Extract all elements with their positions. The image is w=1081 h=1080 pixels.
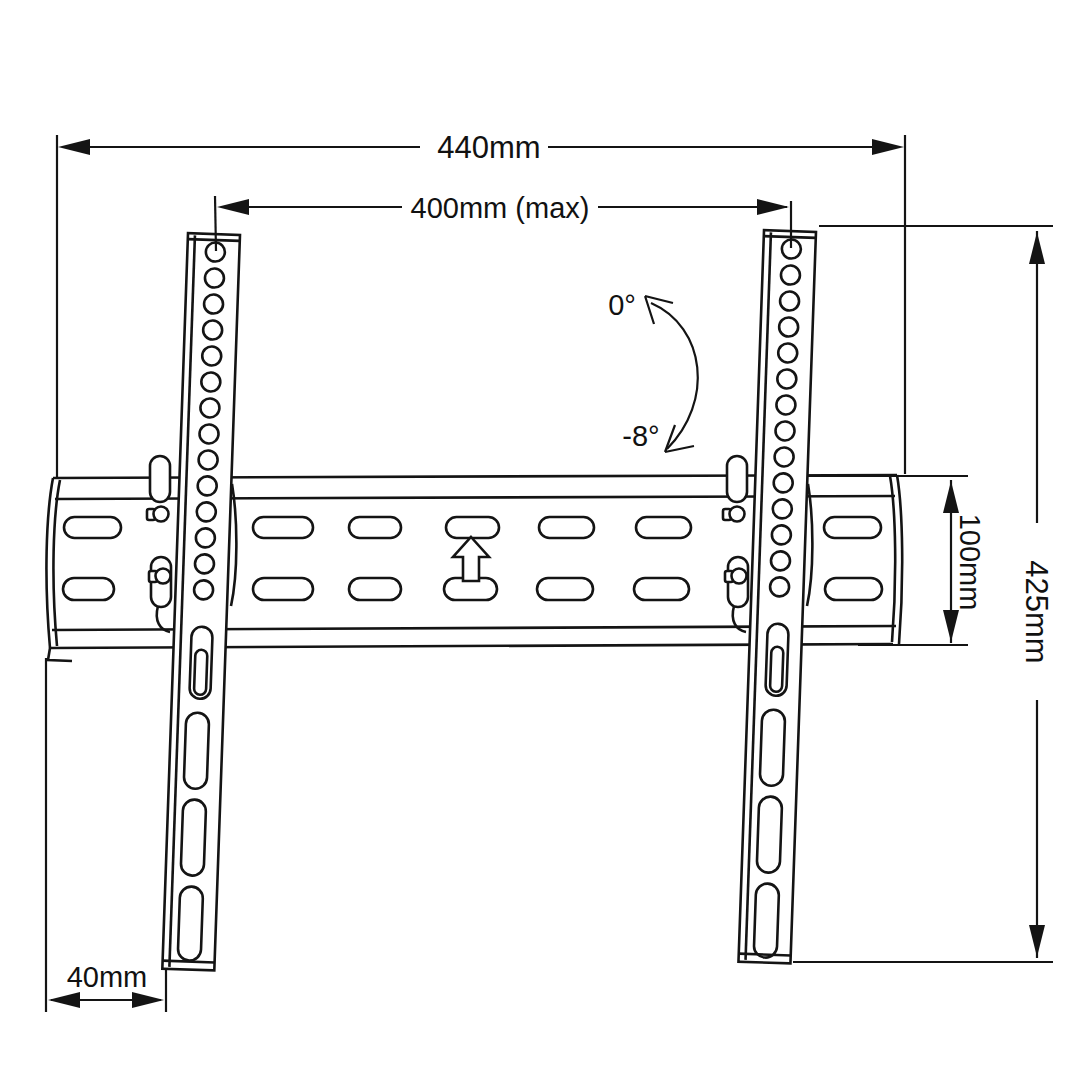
- right-bracket-bottom-cap: [739, 954, 791, 956]
- arrowhead-top: [943, 481, 959, 513]
- rail-left-fold-outer: [46, 478, 53, 648]
- arrowhead-left: [217, 199, 249, 215]
- max-hole-spacing-label: 400mm (max): [411, 192, 590, 224]
- rail-right-fold-inner: [890, 476, 895, 642]
- overall-width-label: 440mm: [437, 130, 540, 165]
- screw-head: [154, 507, 169, 522]
- tilt-lower-label: -8°: [622, 420, 659, 452]
- right-vesa-bracket: [738, 230, 816, 963]
- left-bracket-top-cap: [188, 239, 240, 241]
- right-bracket-hooks: [727, 456, 748, 632]
- arrowhead-left: [58, 139, 90, 155]
- arrowhead-right: [757, 199, 789, 215]
- right-upper-hook-ear: [727, 456, 747, 502]
- left-hook-curl: [157, 606, 170, 632]
- dimension-bracket-height: 425mm: [793, 226, 1054, 962]
- left-vesa-bracket: [162, 233, 240, 970]
- screw-head: [156, 569, 171, 584]
- dimension-edge-offset: 40mm: [46, 658, 166, 1012]
- wall-mount-diagram: 0° -8° 440mm 400mm (max) 425mm: [0, 0, 1081, 1080]
- screw-head: [730, 507, 745, 522]
- rail-right-fold-outer: [897, 475, 902, 644]
- bracket-height-label: 425mm: [1019, 560, 1054, 663]
- arrowhead-top: [1029, 232, 1045, 264]
- arrowhead-right: [132, 992, 164, 1008]
- arrowhead-left: [48, 992, 80, 1008]
- screw-head: [732, 569, 747, 584]
- right-bracket-top-cap: [764, 236, 816, 238]
- left-upper-hook-ear: [150, 456, 170, 502]
- rail-left-fold-inner: [53, 480, 60, 646]
- tilt-arc-arrowhead-top: [645, 296, 673, 324]
- arrowhead-bottom: [1029, 925, 1045, 957]
- tilt-upper-label: 0°: [608, 289, 636, 321]
- dimension-max-hole-spacing: 400mm (max): [215, 192, 791, 251]
- tilt-angle-indicator: 0° -8°: [608, 289, 698, 452]
- edge-offset-label: 40mm: [67, 961, 148, 993]
- technical-drawing-canvas: 0° -8° 440mm 400mm (max) 425mm: [0, 0, 1081, 1080]
- arrowhead-right: [872, 139, 904, 155]
- rail-left-lip: [48, 648, 72, 661]
- right-hook-curl: [733, 606, 746, 632]
- arrowhead-bottom: [943, 610, 959, 642]
- dimension-rail-height: 100mm: [808, 476, 986, 645]
- left-bracket-hooks: [150, 456, 171, 632]
- up-direction-arrow-icon: [453, 537, 489, 581]
- rail-height-label: 100mm: [954, 514, 986, 611]
